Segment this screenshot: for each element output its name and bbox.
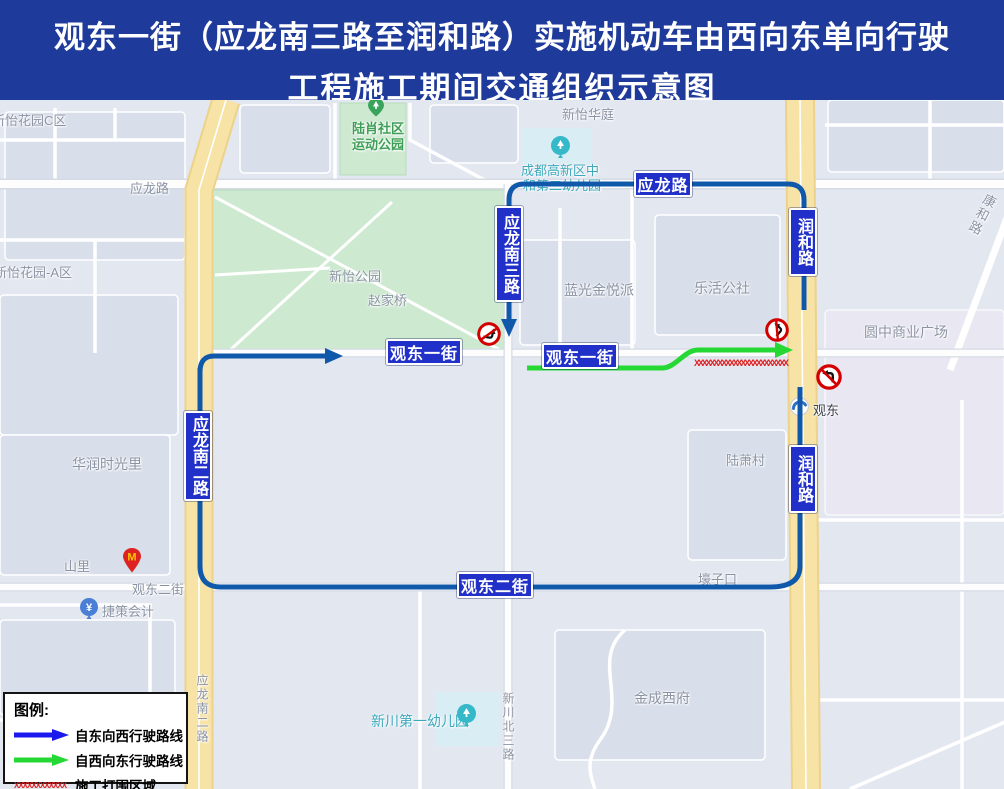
road-badge-guandong2: 观东二街	[457, 572, 533, 598]
road-badge-runhe-south: 润和路	[789, 445, 817, 513]
legend-label-east-to-west: 自东向西行驶路线	[75, 725, 183, 745]
label-yinglong-s2-gray: 应龙南二路	[194, 674, 211, 744]
map-canvas: 新怡花园C区 应龙路 新怡花园-A区 新怡华庭 陆肖社区 运动公园 成都高新区中…	[0, 100, 1004, 789]
label-xinyi-huating: 新怡华庭	[562, 104, 614, 123]
svg-text:¥: ¥	[86, 602, 93, 614]
legend-label-construction-zone: 施工打围区域	[75, 775, 156, 789]
route-blue-runhe-yinglong-s3-arrow	[509, 184, 804, 322]
kindergarten-icon	[457, 704, 476, 732]
road-badge-yinglong-road: 应龙路	[634, 171, 692, 197]
route-overlay-layer: XXXXXXXXXXXXXXXXXXXXXXXX	[0, 100, 1004, 789]
legend-title: 图例:	[14, 699, 177, 720]
road-badge-guandong1-east: 观东一街	[542, 343, 618, 369]
svg-text:M: M	[127, 552, 136, 564]
legend-row-construction: XXXXXXXXXXXX 施工打围区域	[14, 775, 177, 789]
green-arrow-icon	[14, 754, 69, 766]
block-top-small	[240, 105, 330, 173]
legend-row-west-to-east: 自西向东行驶路线	[14, 750, 177, 770]
legend-box: 图例: 自东向西行驶路线 自西向东行驶路线 XXXXXXXXXXXX 施工打围区…	[3, 692, 188, 784]
label-kanghe-road: 康和路	[963, 190, 1000, 239]
label-xinyi-park: 新怡公园	[329, 266, 381, 285]
label-xinyi-garden-c: 新怡花园C区	[0, 110, 66, 129]
block-top-mid	[430, 105, 518, 163]
blue-arrow-icon	[14, 729, 69, 741]
label-guandong2-gray: 观东二街	[132, 579, 184, 598]
label-yuanzhong-mall: 圆中商业广场	[864, 322, 948, 342]
block-xinyi-a	[0, 295, 178, 435]
mcdonalds-icon: M	[123, 548, 141, 578]
metro-station-icon	[790, 397, 809, 421]
street-minor	[410, 103, 492, 184]
street-minor	[850, 722, 1004, 789]
label-xinyi-garden-a: 新怡花园-A区	[0, 262, 72, 281]
street-minor	[590, 630, 625, 789]
no-left-turn-icon	[477, 322, 501, 351]
label-xinchuan-kindergarten: 新川第一幼儿园	[371, 711, 469, 731]
label-lehuo: 乐活公社	[694, 278, 750, 298]
accounting-yen-icon: ¥	[80, 598, 98, 625]
label-huarun: 华润时光里	[72, 454, 142, 474]
construction-hatch-icon: XXXXXXXXXXXX	[14, 781, 69, 789]
road-badge-guandong1-west: 观东一街	[386, 339, 462, 365]
label-luxiao-village: 陆萧村	[726, 450, 765, 469]
label-yinglong-road-gray: 应龙路	[130, 178, 169, 197]
title-line-1: 观东一街（应龙南三路至润和路）实施机动车由西向东单向行驶	[0, 0, 1004, 57]
label-xinchuan-n3-road: 新川北三路	[500, 692, 517, 762]
label-jincheng: 金成西府	[634, 688, 690, 708]
label-luxiao-sports-park-2: 运动公园	[352, 134, 404, 153]
label-guandong-station: 观东	[813, 400, 839, 419]
road-badge-yinglong-s2: 应龙南二路	[184, 411, 212, 501]
base-map-layer	[0, 100, 1004, 789]
route-blue-guandong1-west-arrow	[200, 356, 328, 372]
label-jiece-accounting: 捷策会计	[102, 601, 154, 620]
legend-row-east-to-west: 自东向西行驶路线	[14, 725, 177, 745]
route-blue-s2-guandong2-runhe	[200, 368, 800, 587]
label-haozikou: 壕子口	[698, 569, 737, 588]
label-zhaojiaqiao: 赵家桥	[368, 290, 407, 309]
title-banner: 观东一街（应龙南三路至润和路）实施机动车由西向东单向行驶 工程施工期间交通组织示…	[0, 0, 1004, 100]
label-shanli: 山里	[64, 556, 90, 575]
block-northeast	[828, 100, 1004, 172]
construction-hatch-zone: XXXXXXXXXXXXXXXXXXXXXXXX	[694, 358, 789, 368]
label-kindergarten2-line2: 和第二幼儿园	[523, 175, 601, 194]
road-badge-runhe-north: 润和路	[789, 208, 817, 276]
kindergarten-icon	[551, 136, 570, 164]
traffic-diagram: 观东一街（应龙南三路至润和路）实施机动车由西向东单向行驶 工程施工期间交通组织示…	[0, 0, 1004, 789]
no-left-turn-icon	[765, 318, 789, 347]
legend-label-construction-route: 自西向东行驶路线	[75, 750, 183, 770]
park-tree-icon	[368, 100, 384, 122]
road-badge-yinglong-s3: 应龙南三路	[495, 206, 523, 302]
block-lehuo	[655, 215, 780, 335]
no-left-turn-icon	[816, 364, 842, 395]
label-languang: 蓝光金悦派	[564, 280, 634, 300]
park-path-3	[215, 268, 330, 275]
